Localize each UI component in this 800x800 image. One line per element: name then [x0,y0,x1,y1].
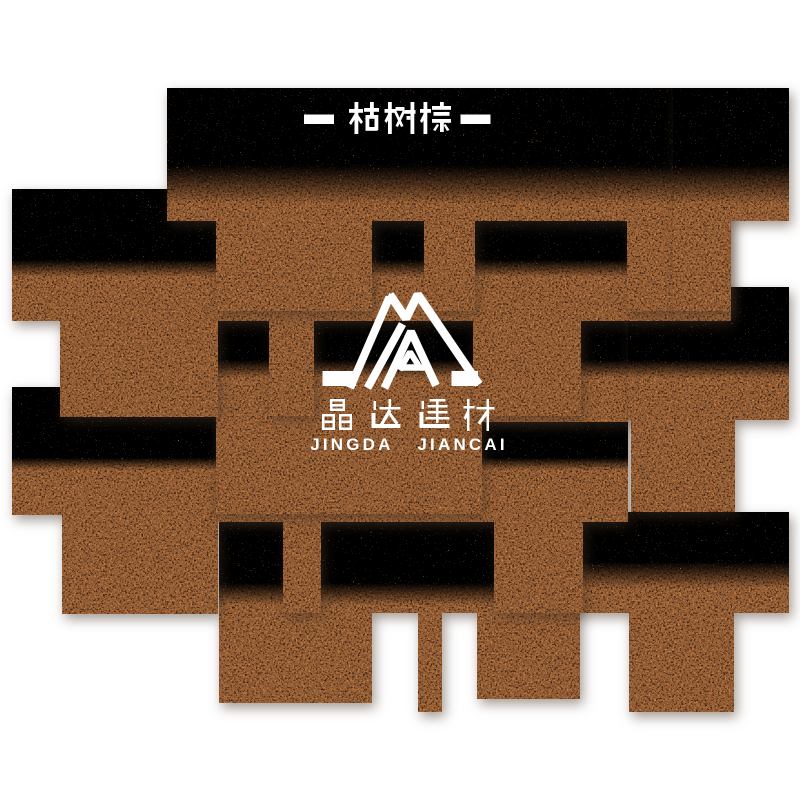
svg-text:JINGDA JIANCAI: JINGDA JIANCAI [310,435,508,454]
